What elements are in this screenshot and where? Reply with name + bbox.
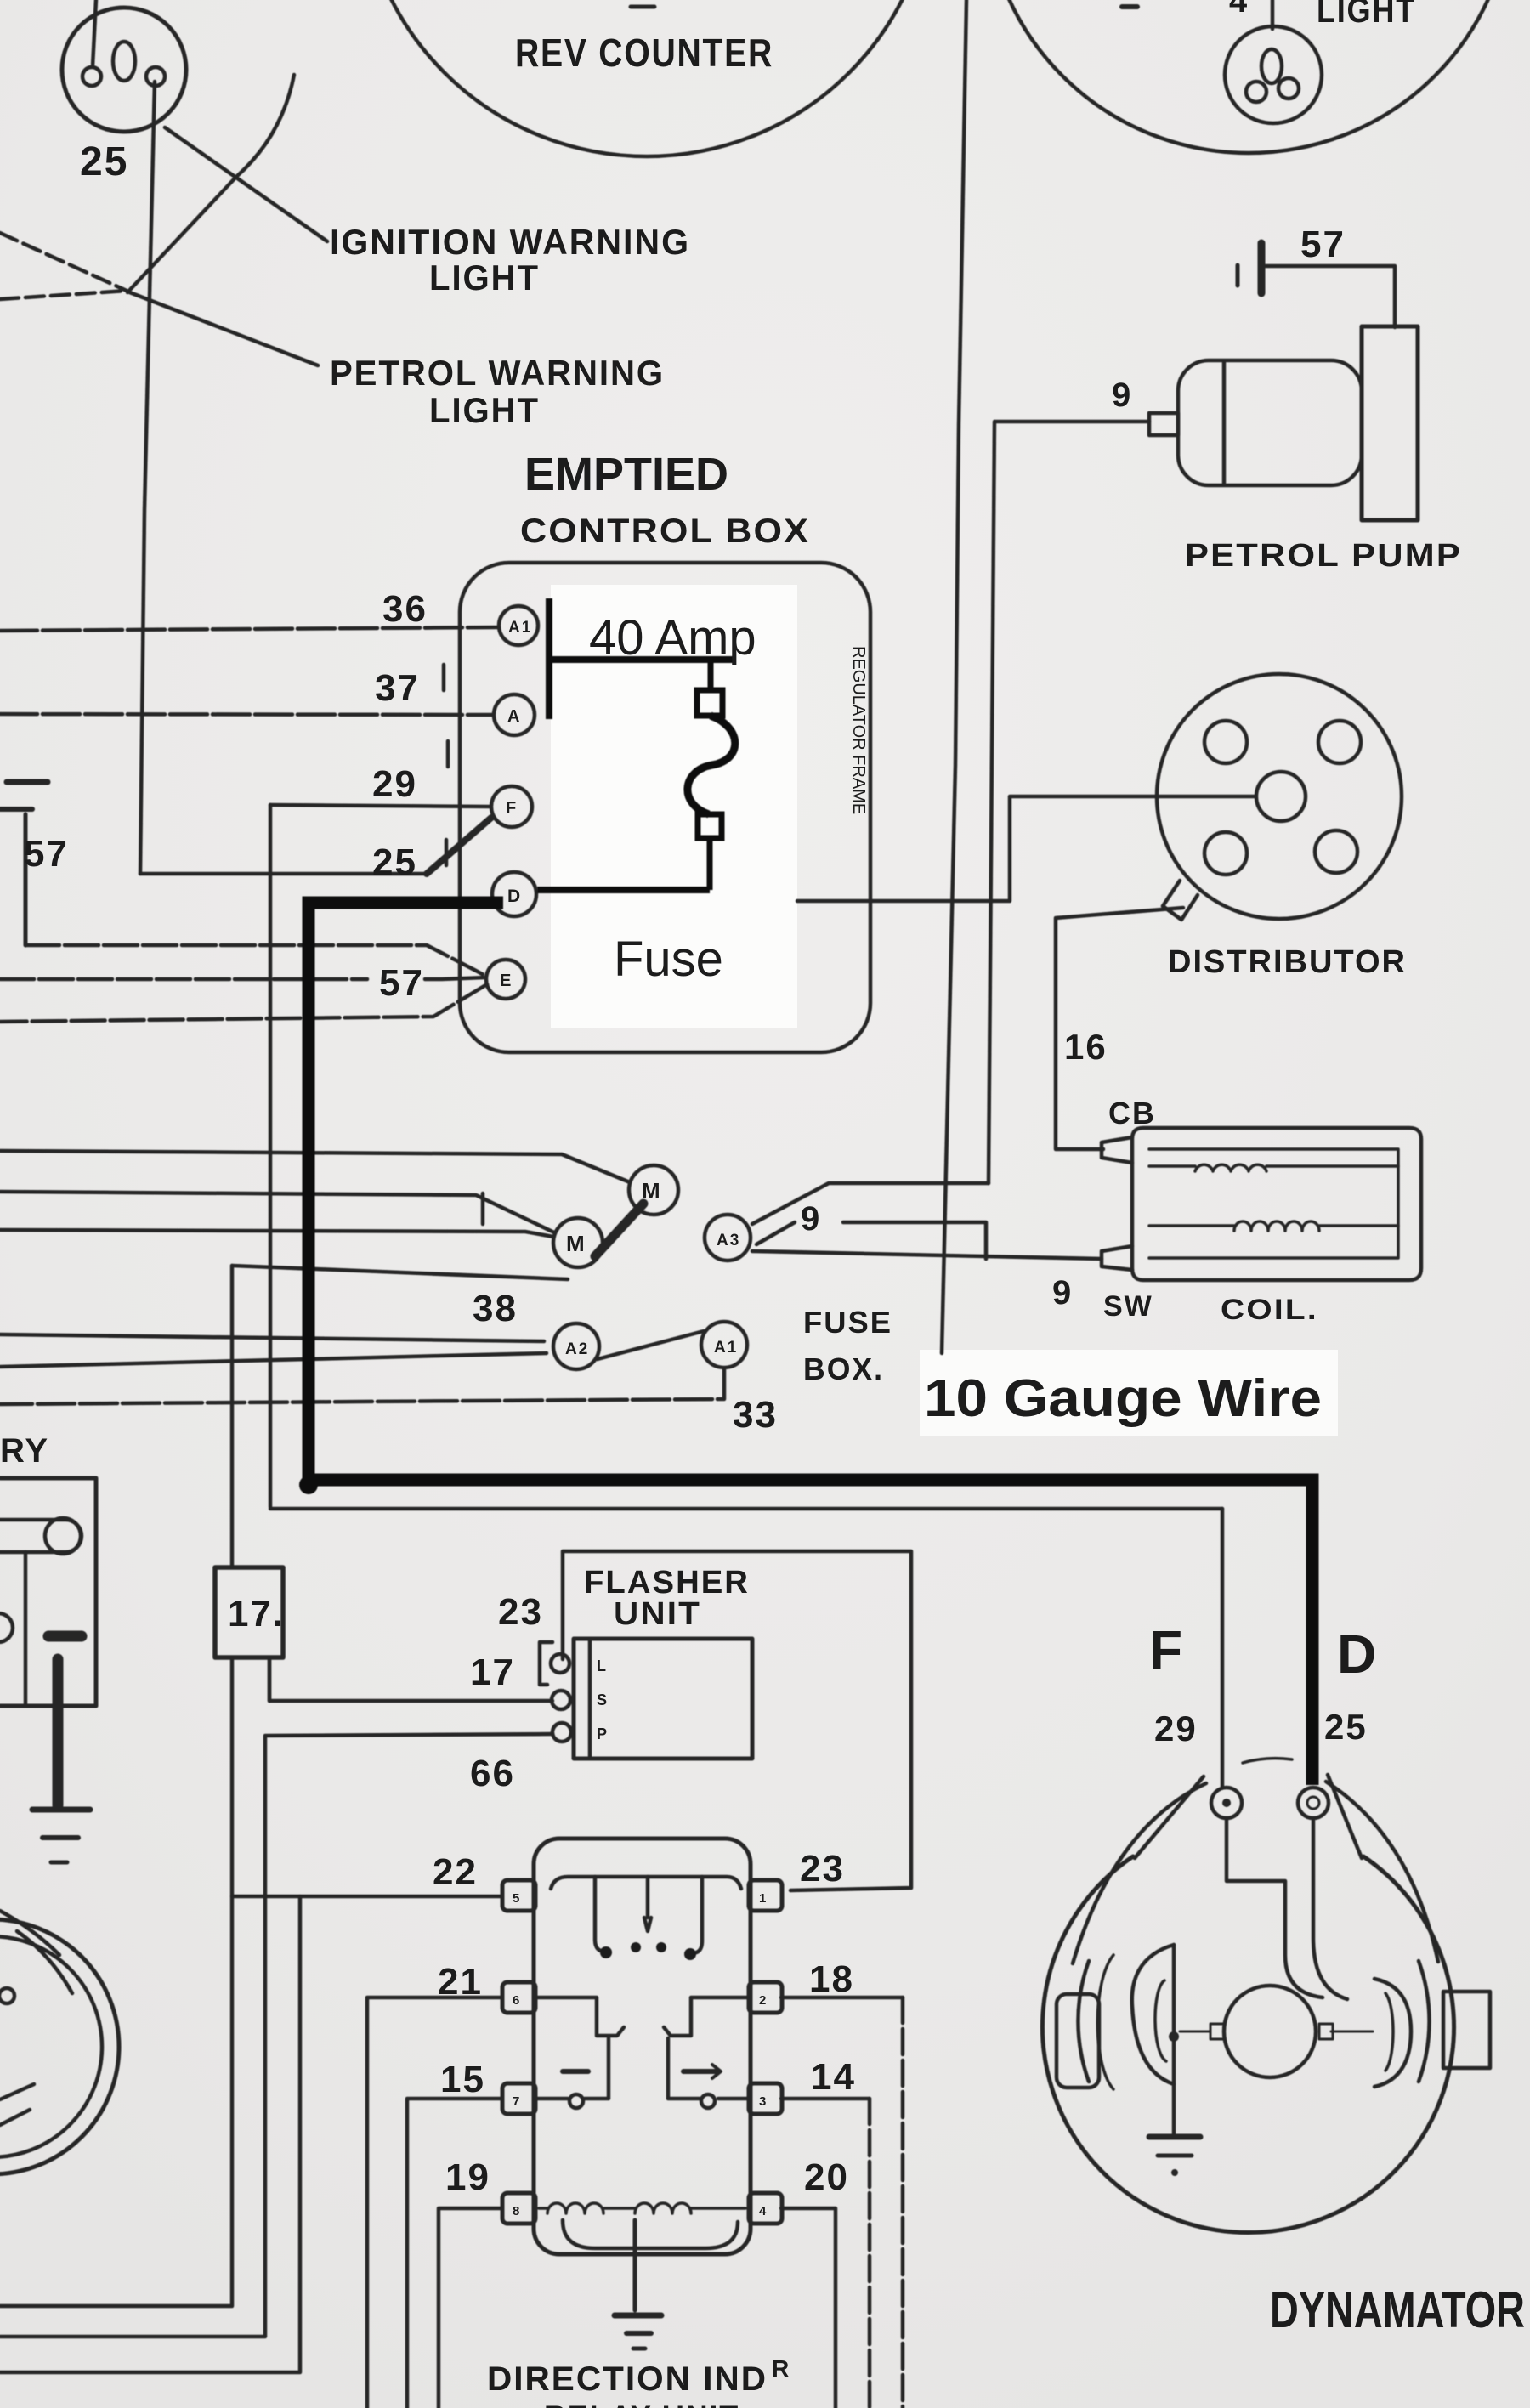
svg-text:A3: A3 (717, 1232, 740, 1249)
svg-text:CONTROL BOX: CONTROL BOX (520, 513, 810, 550)
svg-text:RY: RY (0, 1432, 49, 1470)
svg-text:20: 20 (804, 2156, 849, 2198)
svg-text:A1: A1 (714, 1339, 738, 1357)
svg-text:9: 9 (1052, 1274, 1073, 1312)
svg-text:A: A (507, 707, 521, 726)
svg-text:9: 9 (801, 1200, 821, 1238)
svg-text:29: 29 (372, 763, 417, 805)
svg-text:P: P (597, 1725, 609, 1742)
svg-text:M: M (566, 1231, 586, 1256)
svg-text:66: 66 (470, 1753, 515, 1794)
svg-text:8: 8 (513, 2204, 521, 2218)
svg-text:3: 3 (759, 2094, 768, 2109)
svg-text:L: L (597, 1657, 608, 1674)
svg-text:10 Gauge Wire: 10 Gauge Wire (924, 1369, 1322, 1428)
svg-text:CB: CB (1108, 1096, 1156, 1130)
svg-text:LIGHT: LIGHT (429, 390, 540, 430)
svg-text:25: 25 (372, 841, 417, 883)
svg-text:Fuse: Fuse (614, 932, 723, 987)
svg-text:M: M (642, 1178, 662, 1204)
svg-text:FUSE: FUSE (803, 1305, 892, 1340)
svg-text:F: F (1149, 1619, 1182, 1680)
svg-text:57: 57 (24, 833, 69, 875)
svg-text:REV COUNTER: REV COUNTER (515, 31, 773, 75)
svg-text:LIGHT: LIGHT (429, 258, 540, 297)
svg-text:25: 25 (80, 139, 128, 184)
svg-text:19: 19 (445, 2156, 490, 2198)
svg-text:DYNAMATOR: DYNAMATOR (1270, 2281, 1525, 2338)
svg-text:D: D (1337, 1623, 1376, 1685)
svg-text:2: 2 (759, 1993, 768, 2008)
svg-text:R: R (772, 2355, 790, 2382)
svg-text:17: 17 (470, 1652, 515, 1693)
svg-text:33: 33 (733, 1394, 778, 1436)
svg-text:57: 57 (379, 962, 424, 1004)
svg-text:15: 15 (440, 2059, 485, 2100)
svg-text:36: 36 (382, 588, 428, 630)
svg-text:16: 16 (1064, 1027, 1108, 1067)
svg-text:5: 5 (513, 1891, 521, 1906)
svg-text:9: 9 (1112, 377, 1132, 414)
svg-text:4: 4 (759, 2204, 768, 2218)
svg-text:BOX.: BOX. (803, 1351, 884, 1386)
svg-text:IGNITION WARNING: IGNITION WARNING (330, 222, 690, 262)
svg-text:DISTRIBUTOR: DISTRIBUTOR (1168, 944, 1407, 980)
svg-text:PETROL PUMP: PETROL PUMP (1185, 538, 1462, 574)
svg-text:PETROL WARNING: PETROL WARNING (330, 353, 665, 393)
svg-text:S: S (597, 1691, 609, 1708)
svg-text:DIRECTION IND: DIRECTION IND (487, 2360, 768, 2398)
svg-text:38: 38 (473, 1288, 518, 1329)
svg-text:21: 21 (438, 1961, 483, 2003)
svg-text:57: 57 (1300, 224, 1346, 265)
svg-text:UNIT: UNIT (614, 1596, 701, 1632)
svg-text:14: 14 (811, 2056, 856, 2098)
svg-text:RELAY UNIT: RELAY UNIT (544, 2400, 739, 2408)
svg-text:6: 6 (513, 1993, 521, 2008)
svg-text:18: 18 (809, 1958, 854, 2000)
svg-text:FLASHER: FLASHER (584, 1565, 750, 1601)
svg-text:4: 4 (1229, 0, 1249, 20)
svg-text:REGULATOR FRAME: REGULATOR FRAME (849, 646, 868, 814)
svg-text:7: 7 (513, 2094, 521, 2109)
svg-text:37: 37 (375, 667, 420, 709)
svg-text:25: 25 (1324, 1707, 1368, 1747)
svg-text:F: F (506, 799, 518, 818)
svg-text:29: 29 (1154, 1708, 1198, 1748)
svg-text:A2: A2 (565, 1340, 589, 1358)
svg-text:40 Amp: 40 Amp (589, 610, 756, 666)
svg-text:SW: SW (1103, 1290, 1153, 1323)
svg-text:1: 1 (759, 1891, 768, 1906)
svg-text:LIGHT: LIGHT (1317, 0, 1416, 30)
svg-text:22: 22 (433, 1851, 478, 1893)
svg-text:COIL.: COIL. (1221, 1294, 1318, 1326)
svg-text:23: 23 (800, 1848, 845, 1890)
svg-text:17.: 17. (228, 1593, 285, 1635)
svg-text:E: E (500, 972, 513, 990)
svg-text:D: D (507, 887, 522, 906)
svg-text:23: 23 (498, 1591, 543, 1633)
svg-text:EMPTIED: EMPTIED (524, 449, 728, 500)
svg-text:A1: A1 (508, 619, 532, 637)
